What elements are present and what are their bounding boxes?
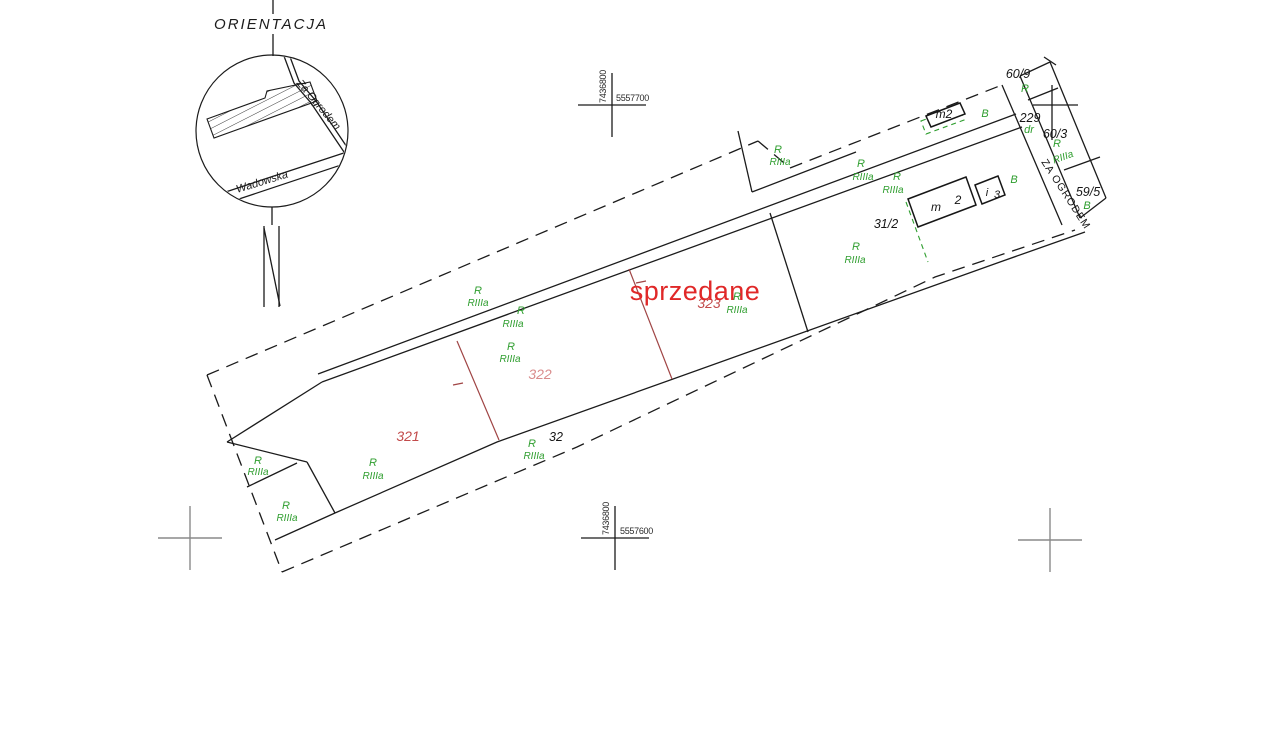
soil-class-riiia: RIIIa bbox=[523, 451, 545, 462]
grid-northing-label-top: 7436800 bbox=[598, 70, 608, 103]
land-use-r: R bbox=[369, 457, 377, 469]
land-use-r: R bbox=[254, 455, 262, 467]
grid-cross-top: 7436800 5557700 bbox=[578, 70, 649, 137]
land-use-r: R bbox=[517, 305, 525, 317]
orientation-title: ORIENTACJA bbox=[214, 16, 328, 33]
grid-cross-bottom: 7436800 5557600 bbox=[581, 502, 653, 570]
soil-class-riiia: RIIIa bbox=[467, 298, 489, 309]
soil-class-riiia: RIIIa bbox=[769, 157, 791, 168]
land-use-r: R bbox=[528, 438, 536, 450]
soil-class-riiia: RIIIa bbox=[362, 471, 384, 482]
parcel-322-label: 322 bbox=[528, 366, 552, 382]
land-use-r: R bbox=[774, 144, 782, 156]
soil-class-riiia: RIIIa bbox=[726, 305, 748, 316]
parcel-32-label: 32 bbox=[549, 430, 563, 444]
grid-northing-label-bottom: 7436800 bbox=[601, 502, 611, 535]
parcel-60-9-label: 60/9 bbox=[1006, 67, 1030, 81]
soil-class-riiia: RIIIa bbox=[499, 354, 521, 365]
land-use-r: R bbox=[733, 291, 741, 303]
grid-cross-right bbox=[1018, 508, 1082, 572]
grid-easting-label-bottom: 5557600 bbox=[620, 526, 653, 536]
land-use-b: B bbox=[1010, 174, 1017, 186]
building-small-label: m2 bbox=[936, 107, 953, 121]
soil-class-riiia: RIIIa bbox=[247, 467, 269, 478]
land-use-r: R bbox=[1053, 138, 1061, 150]
soil-class-riiia: RIIIa bbox=[502, 319, 524, 330]
building-annex-storeys: 3 bbox=[994, 189, 1001, 201]
building-main-storeys: 2 bbox=[954, 193, 962, 207]
building-main bbox=[908, 177, 976, 227]
parcel-59-5-label: 59/5 bbox=[1076, 185, 1100, 199]
land-use-r: R bbox=[474, 285, 482, 297]
buildings bbox=[906, 103, 1005, 262]
soil-class-riiia: RIIIa bbox=[882, 185, 904, 196]
land-use-b: B bbox=[1083, 200, 1090, 212]
orientation-inset: ORIENTACJA Za Ogrodem Wadowska bbox=[183, 0, 359, 307]
building-main-letter: m bbox=[931, 200, 941, 214]
parcel-31-2-label: 31/2 bbox=[874, 217, 898, 231]
land-use-r: R bbox=[893, 171, 901, 183]
land-use-r: R bbox=[1021, 83, 1029, 95]
land-use-r: R bbox=[282, 500, 290, 512]
soil-class-riiia: RIIIa bbox=[852, 172, 874, 183]
land-use-r: R bbox=[852, 241, 860, 253]
north-symbol bbox=[264, 207, 280, 307]
grid-cross-left bbox=[158, 506, 222, 570]
land-use-dr: dr bbox=[1024, 124, 1035, 136]
survey-plan-drawing: ORIENTACJA Za Ogrodem Wadowska 7436800 5… bbox=[0, 0, 1280, 731]
land-use-r: R bbox=[857, 158, 865, 170]
soil-class-riiia: RIIIa bbox=[844, 255, 866, 266]
soil-class-riiia: RIIIa bbox=[276, 513, 298, 524]
soil-class-riiia: RIIIa bbox=[1051, 149, 1075, 167]
parcel-number-labels: 321 322 323 sprzedane 32 31/2 229 60/9 6… bbox=[396, 67, 1100, 444]
land-use-r: R bbox=[507, 341, 515, 353]
parcel-321-label: 321 bbox=[396, 428, 419, 444]
parcel-229-label: 229 bbox=[1019, 111, 1041, 125]
cadastral-map-canvas: ORIENTACJA Za Ogrodem Wadowska 7436800 5… bbox=[0, 0, 1280, 731]
outer-boundary-dashed bbox=[207, 85, 1075, 572]
grid-easting-label-top: 5557700 bbox=[616, 93, 649, 103]
building-annex bbox=[975, 176, 1005, 204]
land-use-b: B bbox=[981, 108, 988, 120]
